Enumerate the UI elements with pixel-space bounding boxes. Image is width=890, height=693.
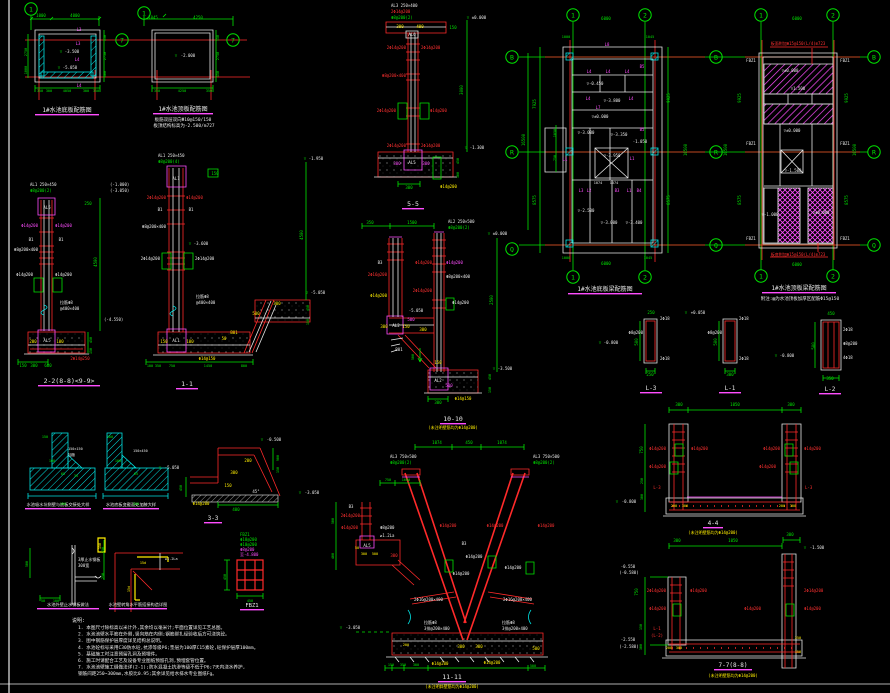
- annotation: L1: [627, 188, 632, 193]
- annotation: 65: [61, 472, 65, 476]
- annotation: 1074: [497, 440, 507, 445]
- annotation: ▽-3.400: [626, 220, 643, 225]
- section-1-1-drawing: [146, 162, 310, 365]
- annotation: Φ14@200: [16, 272, 33, 277]
- grid-bubble-label: R: [872, 148, 876, 156]
- annotation: 150: [89, 348, 93, 354]
- haunch-hatch: [122, 455, 136, 468]
- title-underline: [103, 508, 159, 509]
- wall-hatch: [41, 72, 93, 78]
- title-underline: [153, 113, 213, 114]
- annotation: 2Φ18: [660, 316, 670, 321]
- annotation: L2: [587, 188, 592, 193]
- annotation: 2Φ14@200: [341, 513, 361, 518]
- annotation: Φ8@200×400: [446, 274, 471, 279]
- note-line: 6. 施工时请配合工艺及设备专业图纸预留孔洞,预埋套管位置。: [78, 657, 209, 664]
- column-pad: [651, 148, 658, 155]
- annotation: 1074: [432, 440, 442, 445]
- drawing-title: 水池吸水坑侧壁与底板交接处大样: [27, 501, 90, 508]
- stirrups-and-dims: [645, 407, 801, 512]
- annotation: 100: [147, 364, 153, 368]
- annotation: ▽±0.000: [784, 128, 801, 133]
- grid-bubble-label: Q: [872, 241, 876, 249]
- annotation: 500: [252, 311, 260, 316]
- annotation: 600: [44, 363, 52, 368]
- drawing-titles: 1#水池底板配筋图1#水池顶板配筋图2-2(8-8)<9-9>1-15-510-…: [25, 105, 841, 682]
- annotation: ▽: [58, 65, 61, 70]
- annotation: 16500: [683, 143, 688, 156]
- annotation: 拉筋Φ8: [60, 299, 73, 305]
- annotation: 300: [673, 538, 681, 543]
- annotation: -5.050: [311, 290, 326, 295]
- annotation: Φ14@200: [763, 446, 780, 451]
- annotation: Φ8@200(2): [448, 225, 470, 230]
- annotation: Φ14@200: [759, 464, 776, 469]
- annotation: 3000: [459, 85, 464, 95]
- annotation: Φ14@200: [446, 260, 463, 265]
- rebar: [823, 322, 839, 368]
- annotation: B1: [29, 237, 34, 242]
- annotation: Φ14@200: [440, 184, 457, 189]
- annotation: 500: [445, 383, 453, 388]
- annotation: 2Φ18: [739, 356, 749, 361]
- annotation: 3排@200×400: [424, 625, 450, 631]
- annotation: 8575: [666, 195, 671, 205]
- annotation: 300宽: [78, 562, 89, 568]
- walls-and-slab: [387, 233, 478, 393]
- annotation: Φ14@200: [430, 108, 447, 113]
- annotation: ▽-3.800: [604, 98, 621, 103]
- title-underline: [240, 609, 264, 610]
- annotation: 50: [355, 546, 359, 550]
- grid-bubble-label: B: [714, 53, 718, 61]
- annotation: Φ8@200(2): [391, 15, 413, 20]
- annotation: 300: [640, 494, 644, 500]
- annotation: 2Φ14@200: [377, 108, 397, 113]
- annotation: 3排@200×400: [502, 625, 528, 631]
- annotation: 350: [93, 89, 99, 93]
- annotation: L3: [579, 188, 584, 193]
- annotation: AL1: [172, 338, 180, 343]
- annotation: 9925: [737, 93, 742, 103]
- drawing-title: 1#水池顶板配筋图: [158, 105, 207, 113]
- title-underline: [176, 388, 198, 389]
- annotation: ▽-3.000: [601, 220, 618, 225]
- annotation: -3.050: [305, 490, 320, 495]
- drawing-title: 1-1: [181, 380, 193, 388]
- detail-sump-corner: [28, 433, 96, 499]
- annotation: 65: [134, 472, 138, 476]
- annotation: -5.050: [409, 308, 424, 313]
- annotation: Φ14@200: [21, 223, 38, 228]
- wall-rebar: [158, 168, 310, 353]
- annotation: 450: [306, 305, 310, 311]
- annotation: 500: [811, 342, 816, 350]
- annotation: 板顶结构标高为-2.500/m727: [153, 122, 215, 129]
- thickened-zone-hatch: [764, 104, 833, 124]
- annotation: Φ14@200: [453, 571, 470, 576]
- annotation: -2.000: [181, 53, 196, 58]
- beam-section-L1: [719, 319, 737, 374]
- annotation: 8575: [844, 195, 849, 205]
- annotation: L3: [77, 27, 82, 32]
- annotation: 750: [385, 478, 391, 482]
- grid-bubble-label: 1: [142, 9, 146, 17]
- annotation: ▽-3.950: [604, 153, 621, 158]
- annotation: ▽±0.000: [592, 114, 609, 119]
- annotation: (未注明壁筋均为Φ14@200): [708, 672, 758, 678]
- annotation: AL5: [43, 338, 51, 343]
- annotation: L-3: [805, 485, 813, 490]
- title-underline: [35, 114, 99, 115]
- annotation: ▽: [60, 49, 63, 54]
- annotation: 300: [457, 644, 465, 649]
- annotation: L4: [75, 57, 80, 62]
- annotation: 2Φ16@200×400: [414, 597, 443, 602]
- annotation: 6000: [792, 16, 802, 21]
- grid-axis-lines: [25, 22, 868, 270]
- drawing-sheet: 17171212BRQBRQ1212BRQ 1#水池底板配筋图1#水池顶板配筋图…: [0, 0, 890, 693]
- title-underline: [37, 608, 99, 609]
- annotation: FBZ1: [840, 141, 850, 146]
- dims: [30, 540, 104, 601]
- annotation: 200: [779, 504, 785, 508]
- annotation: 2750: [24, 48, 28, 56]
- annotation: AL3 750×500: [390, 454, 417, 459]
- drawing-title: 2-2(8-8)<9-9>: [44, 377, 95, 385]
- annotation: -3.500: [498, 366, 513, 371]
- note-line: 1. 本图尺寸除标高以米计外,其余均以毫米计;平面位置详见工艺总图。: [78, 624, 225, 631]
- annotation: 300: [393, 161, 401, 166]
- annotation: 150: [449, 25, 457, 30]
- annotation: ▽±0.000: [782, 68, 799, 73]
- annotation: ▽±0.000: [813, 210, 830, 215]
- annotation: -0.800: [604, 340, 619, 345]
- detail-FBZ1-column-section: [224, 560, 263, 599]
- annotation: Φ8@200×400: [142, 224, 167, 229]
- grid-bubble-label: 7: [231, 36, 235, 44]
- annotation: B4: [637, 188, 642, 193]
- annotation: FBZ1: [840, 58, 850, 63]
- annotation: 7925: [532, 99, 537, 109]
- grid-bubble-label: B: [510, 53, 514, 61]
- annotation: ▽: [467, 15, 470, 20]
- annotation: Φ14@200: [440, 523, 457, 528]
- annotation: L-1: [653, 626, 661, 631]
- annotation: -3.600: [194, 241, 209, 246]
- annotation: ≥1.2La: [165, 557, 178, 561]
- annotation: 板筋双层双向Φ10@150/150: [155, 116, 212, 123]
- annotation: L3: [76, 41, 81, 46]
- annotation: 350: [103, 35, 107, 41]
- rebar: [646, 321, 655, 361]
- title-underline: [109, 608, 167, 609]
- annotation: 16500: [852, 143, 857, 156]
- annotation: 8575: [532, 195, 537, 205]
- beam-boxes: [38, 198, 55, 352]
- grid-bubble-label: 2: [643, 11, 647, 19]
- annotation: 300: [639, 644, 643, 650]
- annotation: 500: [331, 518, 335, 524]
- outline: [821, 320, 841, 370]
- annotations: 10004000▽-3.500▽-5.050L3L3L4L43503004050…: [14, 3, 858, 689]
- annotation: Φ8@200: [843, 341, 858, 346]
- annotation: 至-4.800: [240, 552, 259, 557]
- grid-bubble-label: 1: [29, 5, 33, 13]
- annotation: 400: [232, 507, 240, 512]
- annotation: 100: [115, 459, 121, 463]
- grid-bubble-label: B: [872, 53, 876, 61]
- annotation: 300: [83, 89, 89, 93]
- column-pad: [566, 240, 573, 247]
- annotation: 250: [101, 573, 105, 579]
- annotation: L7: [596, 105, 601, 110]
- annotation: 450: [465, 440, 473, 445]
- annotation: ▽: [189, 241, 192, 246]
- plate-lines: [72, 545, 101, 605]
- annotation: 2Φ14@200: [195, 256, 215, 261]
- column-pad: [566, 53, 573, 60]
- drawing-title: 水池壁转角水平筋搭接构造详图: [109, 601, 168, 608]
- annotation: 15d: [127, 586, 131, 592]
- annotation: Φ8@200: [380, 525, 395, 530]
- annotation: 300: [475, 644, 483, 649]
- annotation: 250: [646, 372, 654, 377]
- annotation: 350: [154, 89, 160, 93]
- annotation: ▽: [493, 366, 496, 371]
- drawing-title: 1#水池底板配筋图: [42, 106, 91, 114]
- annotation: 500: [372, 552, 378, 556]
- annotation: ±0.000: [472, 15, 487, 20]
- annotation: FBZ1: [746, 141, 756, 146]
- annotation: 2Φ14@200: [421, 143, 441, 148]
- annotation: AL5: [408, 160, 416, 165]
- annotation: 300: [682, 504, 688, 508]
- annotation: +0.050: [691, 310, 706, 315]
- annotation: Φ14@200: [55, 223, 72, 228]
- annotation: 1050: [728, 538, 738, 543]
- annotation: Φ8@200: [629, 330, 644, 335]
- annotation: 150: [306, 319, 310, 325]
- section-10-10-drawing: [362, 223, 497, 402]
- annotation: Φ8@200×400: [382, 73, 407, 78]
- annotation: 150: [216, 71, 220, 77]
- annotation: 50: [41, 599, 45, 603]
- annotation: -2.550: [621, 637, 636, 642]
- annotation: -3.050: [346, 625, 361, 630]
- annotation: 2Φ14@200: [421, 45, 441, 50]
- annotation: 350: [366, 220, 374, 225]
- annotation: (-3.050): [110, 188, 129, 193]
- annotation: 300: [726, 372, 734, 377]
- annotation: L-3: [653, 485, 661, 490]
- note-line: 3. 图中钢筋保护层厚度详见结构总说明。: [78, 637, 164, 644]
- annotation: 1000: [36, 13, 46, 18]
- wall-hatch: [39, 36, 44, 76]
- annotation: 300: [390, 553, 398, 558]
- annotation: 1045: [644, 256, 652, 260]
- annotation: 200: [666, 646, 672, 650]
- annotation: 2Φ16@200×400: [503, 597, 532, 602]
- annotation: 150: [224, 483, 232, 488]
- grid-bubble-label: R: [510, 148, 514, 156]
- annotation: ▽-1.000: [762, 212, 779, 217]
- annotation: 6000: [601, 16, 611, 21]
- annotation: Φ14@200: [186, 195, 203, 200]
- drawing-title: 1#水池底板梁配筋图: [577, 285, 632, 293]
- annotation: Φ14@150: [455, 396, 472, 401]
- column-rebar-grid: [237, 560, 263, 590]
- annotation: 16500: [723, 143, 728, 156]
- annotation: 800: [241, 364, 247, 368]
- annotation: 300: [675, 402, 683, 407]
- annotation: ▽-1.500: [785, 168, 802, 173]
- annotation: ▽-2.500: [578, 208, 595, 213]
- annotation: 加腋: [68, 452, 75, 457]
- title-underline: [703, 527, 723, 528]
- column-pad: [566, 148, 573, 155]
- annotation: 9925: [666, 93, 671, 103]
- note-line: 钢筋间距250~300mm,水胶比0.95;其余详见给水排水专业图纸Fg。: [78, 670, 217, 677]
- annotation: 150: [98, 543, 102, 549]
- annotation: 300: [46, 89, 52, 93]
- annotation: B3: [349, 504, 354, 509]
- annotation: 300: [456, 172, 460, 178]
- annotation: B5: [640, 64, 645, 69]
- annotation: L4: [587, 69, 592, 74]
- annotation: 500: [532, 646, 540, 651]
- annotation: B1: [158, 207, 163, 212]
- grid-bubble-label: 1: [759, 11, 763, 19]
- annotation: 300: [676, 646, 682, 650]
- annotation: (未注明壁筋均为Φ14@200): [428, 424, 478, 430]
- annotation: Φ14@200: [690, 588, 707, 593]
- annotation: 1050: [553, 129, 557, 137]
- annotation: L8: [605, 42, 610, 47]
- annotation: 300: [786, 532, 794, 537]
- grid-bubble-label: 1: [571, 11, 575, 19]
- annotation: (-4.550): [104, 317, 123, 322]
- thickened-zone-crosshatch: [808, 188, 833, 243]
- drawing-title: L-1: [725, 385, 736, 392]
- annotation: Φ14@200: [341, 525, 358, 530]
- annotation: 3厚止水钢板: [78, 556, 100, 562]
- dim-line: [103, 493, 168, 499]
- annotation: 300: [380, 324, 388, 329]
- note-line: 5. 基础施工时注意预留孔洞及预埋件。: [78, 650, 160, 657]
- annotation: Φ14@200: [649, 446, 666, 451]
- annotation: -0.550: [621, 564, 636, 569]
- annotation: 1000: [24, 66, 28, 74]
- annotation: ▽: [616, 499, 619, 504]
- grid-bubble-label: 7: [120, 36, 124, 44]
- annotation: @400×400: [60, 306, 80, 311]
- annotation: Φ14@200: [487, 523, 504, 528]
- annotation: (未注明壁筋均为Φ14@200): [688, 529, 738, 535]
- annotation: AL2: [434, 378, 442, 383]
- annotation: L4: [606, 69, 611, 74]
- grid-bubble-label: Q: [714, 241, 718, 249]
- annotation: 100: [53, 599, 59, 603]
- annotation: 1045: [646, 35, 654, 39]
- annotation: ≥1.2La: [380, 533, 395, 538]
- annotation: 200: [60, 502, 66, 506]
- annotation: ▽: [299, 490, 302, 495]
- title-underline: [568, 293, 642, 294]
- annotation: 300: [273, 301, 281, 306]
- grid-bubble-label: 2: [831, 272, 835, 280]
- annotation: 200: [133, 502, 139, 506]
- annotation: 250: [795, 636, 801, 640]
- annotation: 500: [407, 317, 415, 322]
- annotation: (-0.580): [619, 570, 638, 575]
- section-4-4-drawing: [645, 407, 806, 516]
- annotation: 6000: [601, 261, 611, 266]
- annotation: -1.050: [633, 139, 648, 144]
- title-underline: [204, 522, 222, 523]
- annotation: 4500: [93, 257, 98, 267]
- drawing-title: L-2: [825, 386, 836, 393]
- annotation: 35: [74, 474, 78, 478]
- annotation: AL6: [408, 32, 416, 37]
- annotation: 2Φ14@200: [391, 9, 411, 14]
- annotation: B3: [378, 260, 383, 265]
- annotation: 100: [49, 459, 55, 463]
- annotation: 250: [84, 201, 92, 206]
- annotation: 450: [456, 158, 460, 164]
- annotation: 150: [211, 171, 219, 176]
- annotation: Φ14@200: [55, 272, 72, 277]
- annotation: ▽: [306, 290, 309, 295]
- annotation: FBZ1: [840, 236, 850, 241]
- annotation: B1: [59, 237, 64, 242]
- annotation: ▽: [804, 545, 807, 550]
- annotation: FBZ1: [746, 58, 756, 63]
- annotation: 150: [434, 360, 442, 365]
- annotation: Φ14@200: [804, 606, 821, 611]
- annotation: 300: [413, 663, 419, 667]
- annotation: @400×400: [196, 300, 216, 305]
- annotation: 450: [223, 574, 227, 580]
- annotation: Φ14@200: [193, 501, 210, 506]
- grid-bubble-label: 1: [759, 272, 763, 280]
- annotation: 100: [56, 339, 64, 344]
- annotation: 400: [331, 553, 335, 559]
- annotation: 150: [402, 324, 410, 329]
- annotation: ▽-3.350: [611, 132, 628, 137]
- note-line: 4. 水池砼标号采用C30防水砼,抗渗等级P6;垫层为100厚C15素砼,砼保护…: [78, 644, 258, 651]
- annotation: 300: [361, 552, 367, 556]
- annotation: 2Φ18: [660, 356, 670, 361]
- annotation: 300: [396, 24, 404, 29]
- annotation: 300: [30, 363, 38, 368]
- annotation: 2750: [216, 52, 220, 60]
- general-notes: 说明:1. 本图尺寸除标高以米计外,其余均以毫米计;平面位置详见工艺总图。2. …: [72, 617, 258, 677]
- annotation: 100: [186, 339, 194, 344]
- annotation: 150: [160, 339, 168, 344]
- annotation: B5: [640, 127, 645, 132]
- annotation: 50: [222, 336, 227, 341]
- annotation: ▽: [175, 53, 178, 58]
- annotation: -5.050: [63, 65, 78, 70]
- annotation: 9925: [844, 93, 849, 103]
- annotation: AL1 250×450: [158, 153, 185, 158]
- annotation: -0.800: [780, 353, 795, 358]
- title-underline: [719, 392, 741, 393]
- grid-bubble-label: 2: [643, 273, 647, 281]
- annotation: 2Φ14@200: [387, 143, 407, 148]
- annotation: 2Φ14@250: [70, 356, 90, 361]
